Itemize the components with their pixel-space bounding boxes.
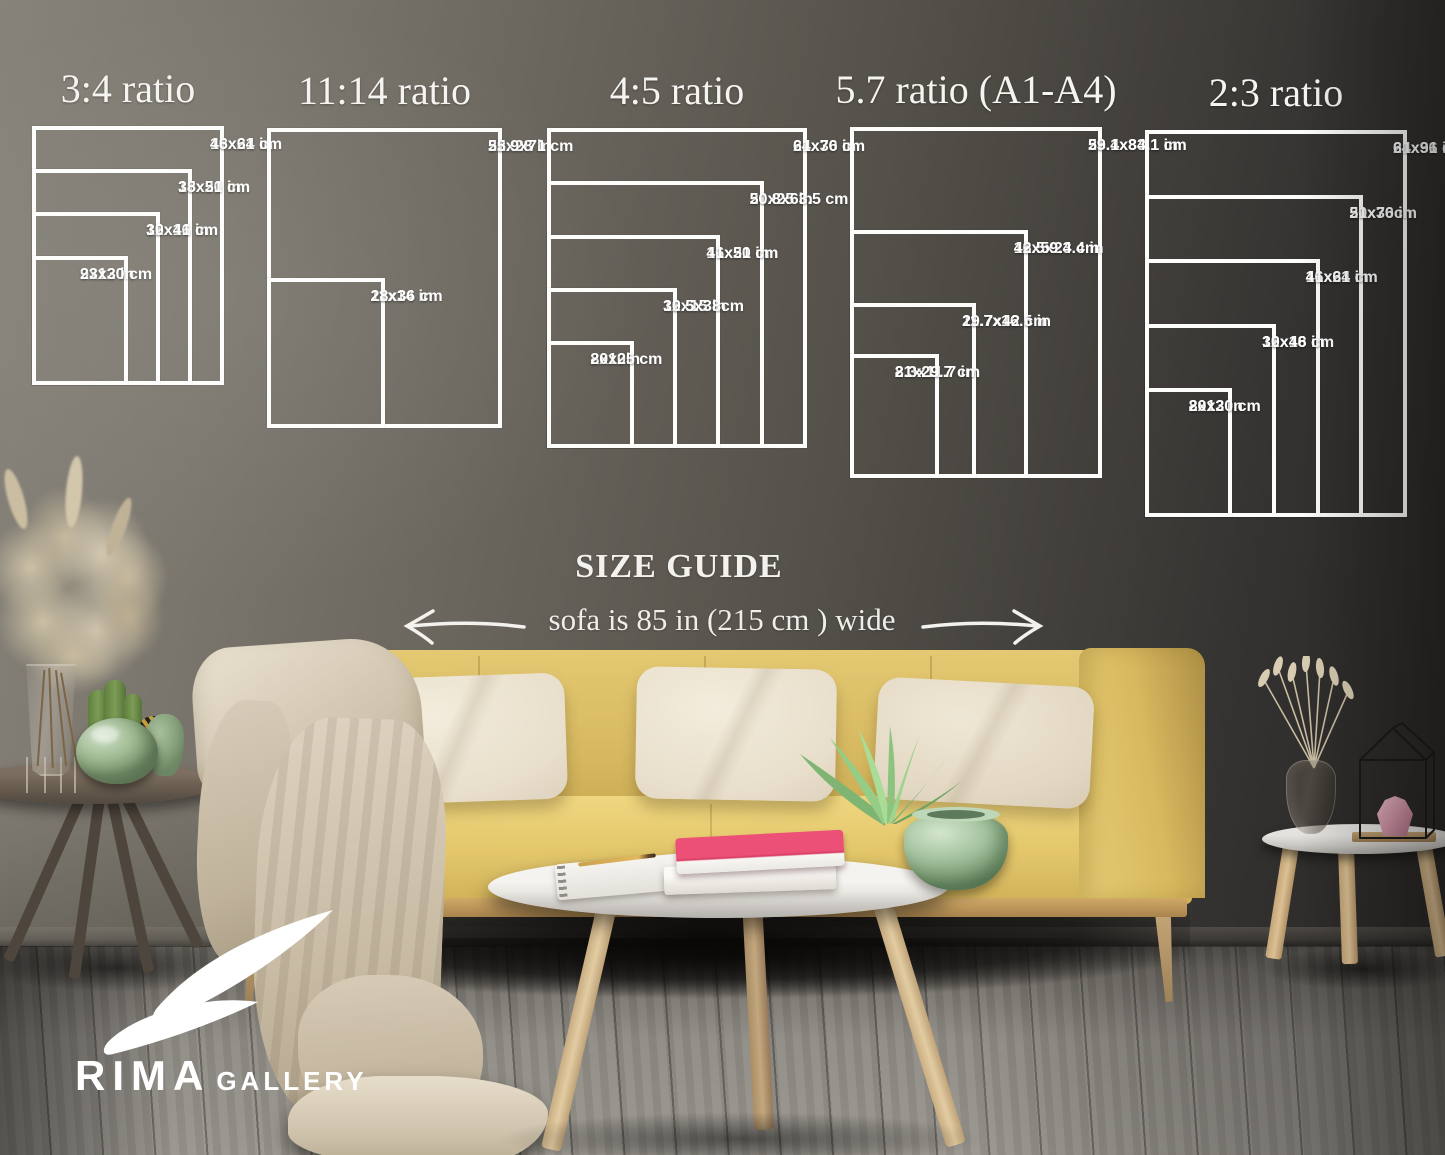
- brand-swoosh-icon: [95, 888, 345, 1078]
- ratio-group-title: 2:3 ratio: [1209, 69, 1343, 116]
- right-arrow-icon: [915, 607, 1047, 645]
- ratio-group-11-14: 11:14 ratio22x28 in55.9x71 cm11x14 in28x…: [267, 128, 502, 428]
- ratio-group-4-5: 4:5 ratio24x30 in61x76 cm20x25 in50.8x63…: [547, 128, 807, 448]
- size-guide-heading: SIZE GUIDE: [479, 548, 879, 586]
- ratio-group-title: 11:14 ratio: [298, 67, 471, 114]
- size-frame: 8x12 in20x30 cm: [1145, 388, 1232, 517]
- sofa-arm-right: [1079, 648, 1205, 898]
- ratio-group-title: 3:4 ratio: [61, 65, 195, 112]
- left-arrow-icon: [400, 607, 532, 645]
- brand-logo: RIMAGALLERY: [75, 1052, 368, 1100]
- size-frame: 8.3x11.7 in21x29.7 cm: [850, 354, 939, 478]
- green-bowl-vase: [76, 718, 158, 784]
- vase-stand-wire: [26, 757, 28, 793]
- ratio-group-title: 4:5 ratio: [610, 67, 744, 114]
- sofa-width-note: sofa is 85 in (215 cm ) wide: [522, 602, 922, 638]
- ratio-group-title: 5.7 ratio (A1-A4): [835, 66, 1116, 113]
- ratio-group-3-4: 3:4 ratio18x24 in46x61 cm15x20 in38x51 c…: [32, 126, 224, 385]
- size-frame: 9x12 in23x30 cm: [32, 256, 128, 386]
- coffee-table-shadow: [498, 1112, 984, 1155]
- brand-name: RIMA: [75, 1052, 210, 1100]
- size-frame: 8x10in20x25 cm: [547, 341, 634, 448]
- ratio-group-2-3: 2:3 ratio24x36 in61x91 cm20x30 in51x76cm…: [1145, 130, 1407, 517]
- brand-suffix: GALLERY: [216, 1066, 367, 1097]
- size-frame: 11x14 in28x36 cm: [267, 278, 385, 428]
- ratio-group-5-7: 5.7 ratio (A1-A4)23.4x33.1 in59.1x84.1 c…: [850, 127, 1102, 478]
- living-room-scene: SIZE GUIDE sofa is 85 in (215 cm ) wide …: [0, 0, 1445, 1155]
